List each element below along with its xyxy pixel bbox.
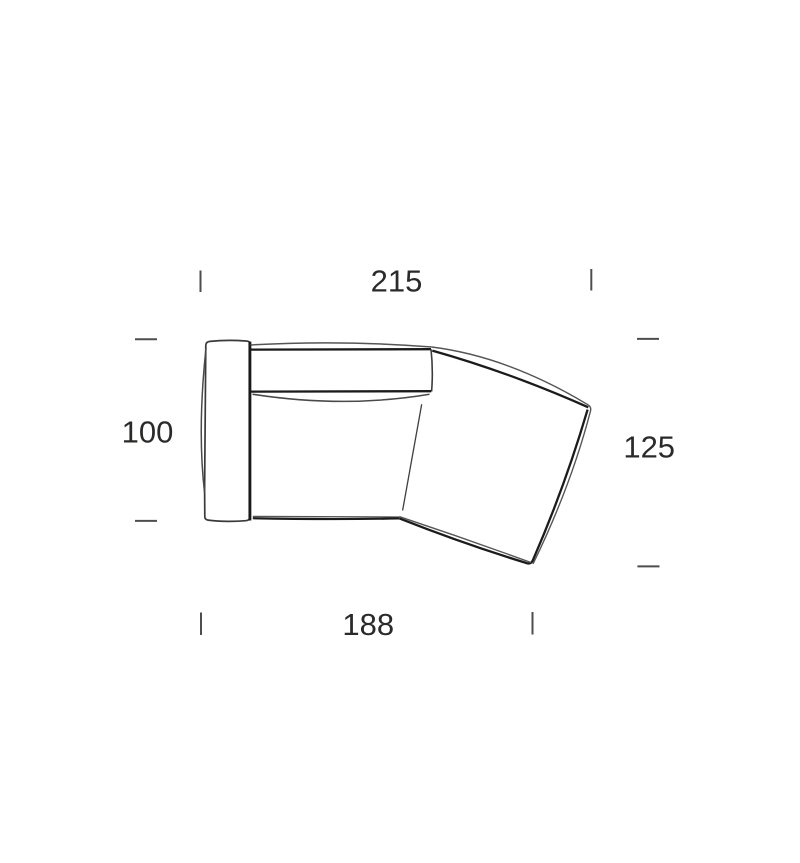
svg-text:215: 215 [371, 264, 423, 299]
svg-text:100: 100 [122, 415, 174, 450]
svg-text:188: 188 [342, 607, 394, 642]
svg-text:125: 125 [623, 430, 675, 465]
